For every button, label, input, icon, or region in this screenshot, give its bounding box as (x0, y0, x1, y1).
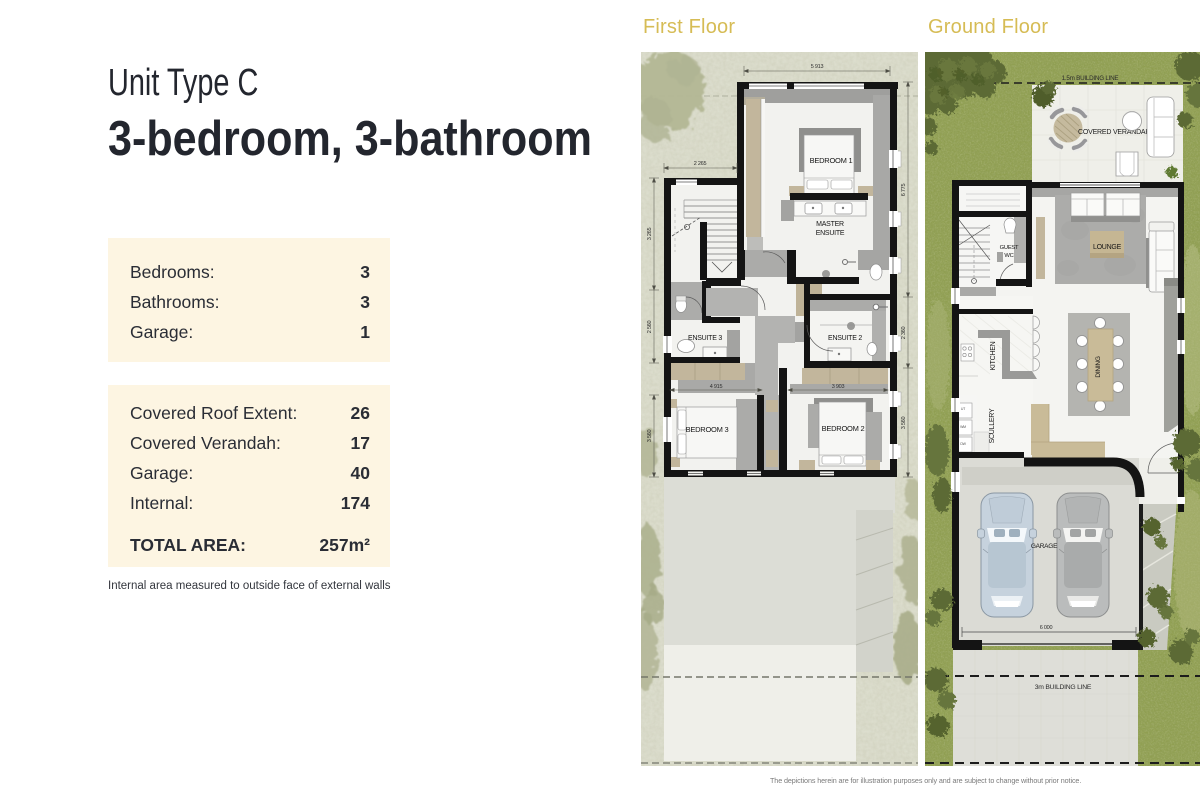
svg-text:6 000: 6 000 (1040, 625, 1053, 631)
svg-text:2 360: 2 360 (901, 327, 907, 340)
svg-text:ENSUITE 2: ENSUITE 2 (828, 335, 862, 342)
svg-text:MASTER: MASTER (816, 221, 844, 228)
svg-text:WC: WC (1004, 253, 1013, 259)
svg-text:BEDROOM 2: BEDROOM 2 (822, 424, 865, 433)
svg-text:GARAGE: GARAGE (1031, 543, 1058, 550)
svg-text:3 560: 3 560 (901, 417, 907, 430)
svg-text:SCULLERY: SCULLERY (989, 408, 996, 443)
svg-text:5 913: 5 913 (811, 64, 824, 70)
svg-text:4 915: 4 915 (710, 384, 723, 390)
svg-text:BEDROOM 1: BEDROOM 1 (810, 156, 853, 165)
svg-text:COVERED VERANDAH: COVERED VERANDAH (1078, 129, 1150, 136)
svg-text:KITCHEN: KITCHEN (990, 341, 997, 370)
svg-text:LOUNGE: LOUNGE (1093, 244, 1122, 251)
svg-text:2 265: 2 265 (694, 161, 707, 167)
svg-text:ENSUITE: ENSUITE (816, 230, 845, 237)
svg-text:BEDROOM 3: BEDROOM 3 (686, 425, 729, 434)
svg-text:3 265: 3 265 (647, 228, 653, 241)
svg-text:6 775: 6 775 (901, 184, 907, 197)
svg-text:DW: DW (960, 442, 966, 446)
svg-text:WM: WM (960, 425, 966, 429)
svg-text:GUEST: GUEST (1000, 245, 1019, 251)
svg-text:ENSUITE 3: ENSUITE 3 (688, 335, 722, 342)
svg-text:3 903: 3 903 (832, 384, 845, 390)
svg-text:3m BUILDING LINE: 3m BUILDING LINE (1035, 684, 1092, 691)
svg-text:2 560: 2 560 (647, 321, 653, 334)
svg-text:DINING: DINING (1095, 356, 1102, 377)
svg-text:1.5m BUILDING LINE: 1.5m BUILDING LINE (1062, 75, 1119, 82)
svg-text:3 560: 3 560 (647, 430, 653, 443)
